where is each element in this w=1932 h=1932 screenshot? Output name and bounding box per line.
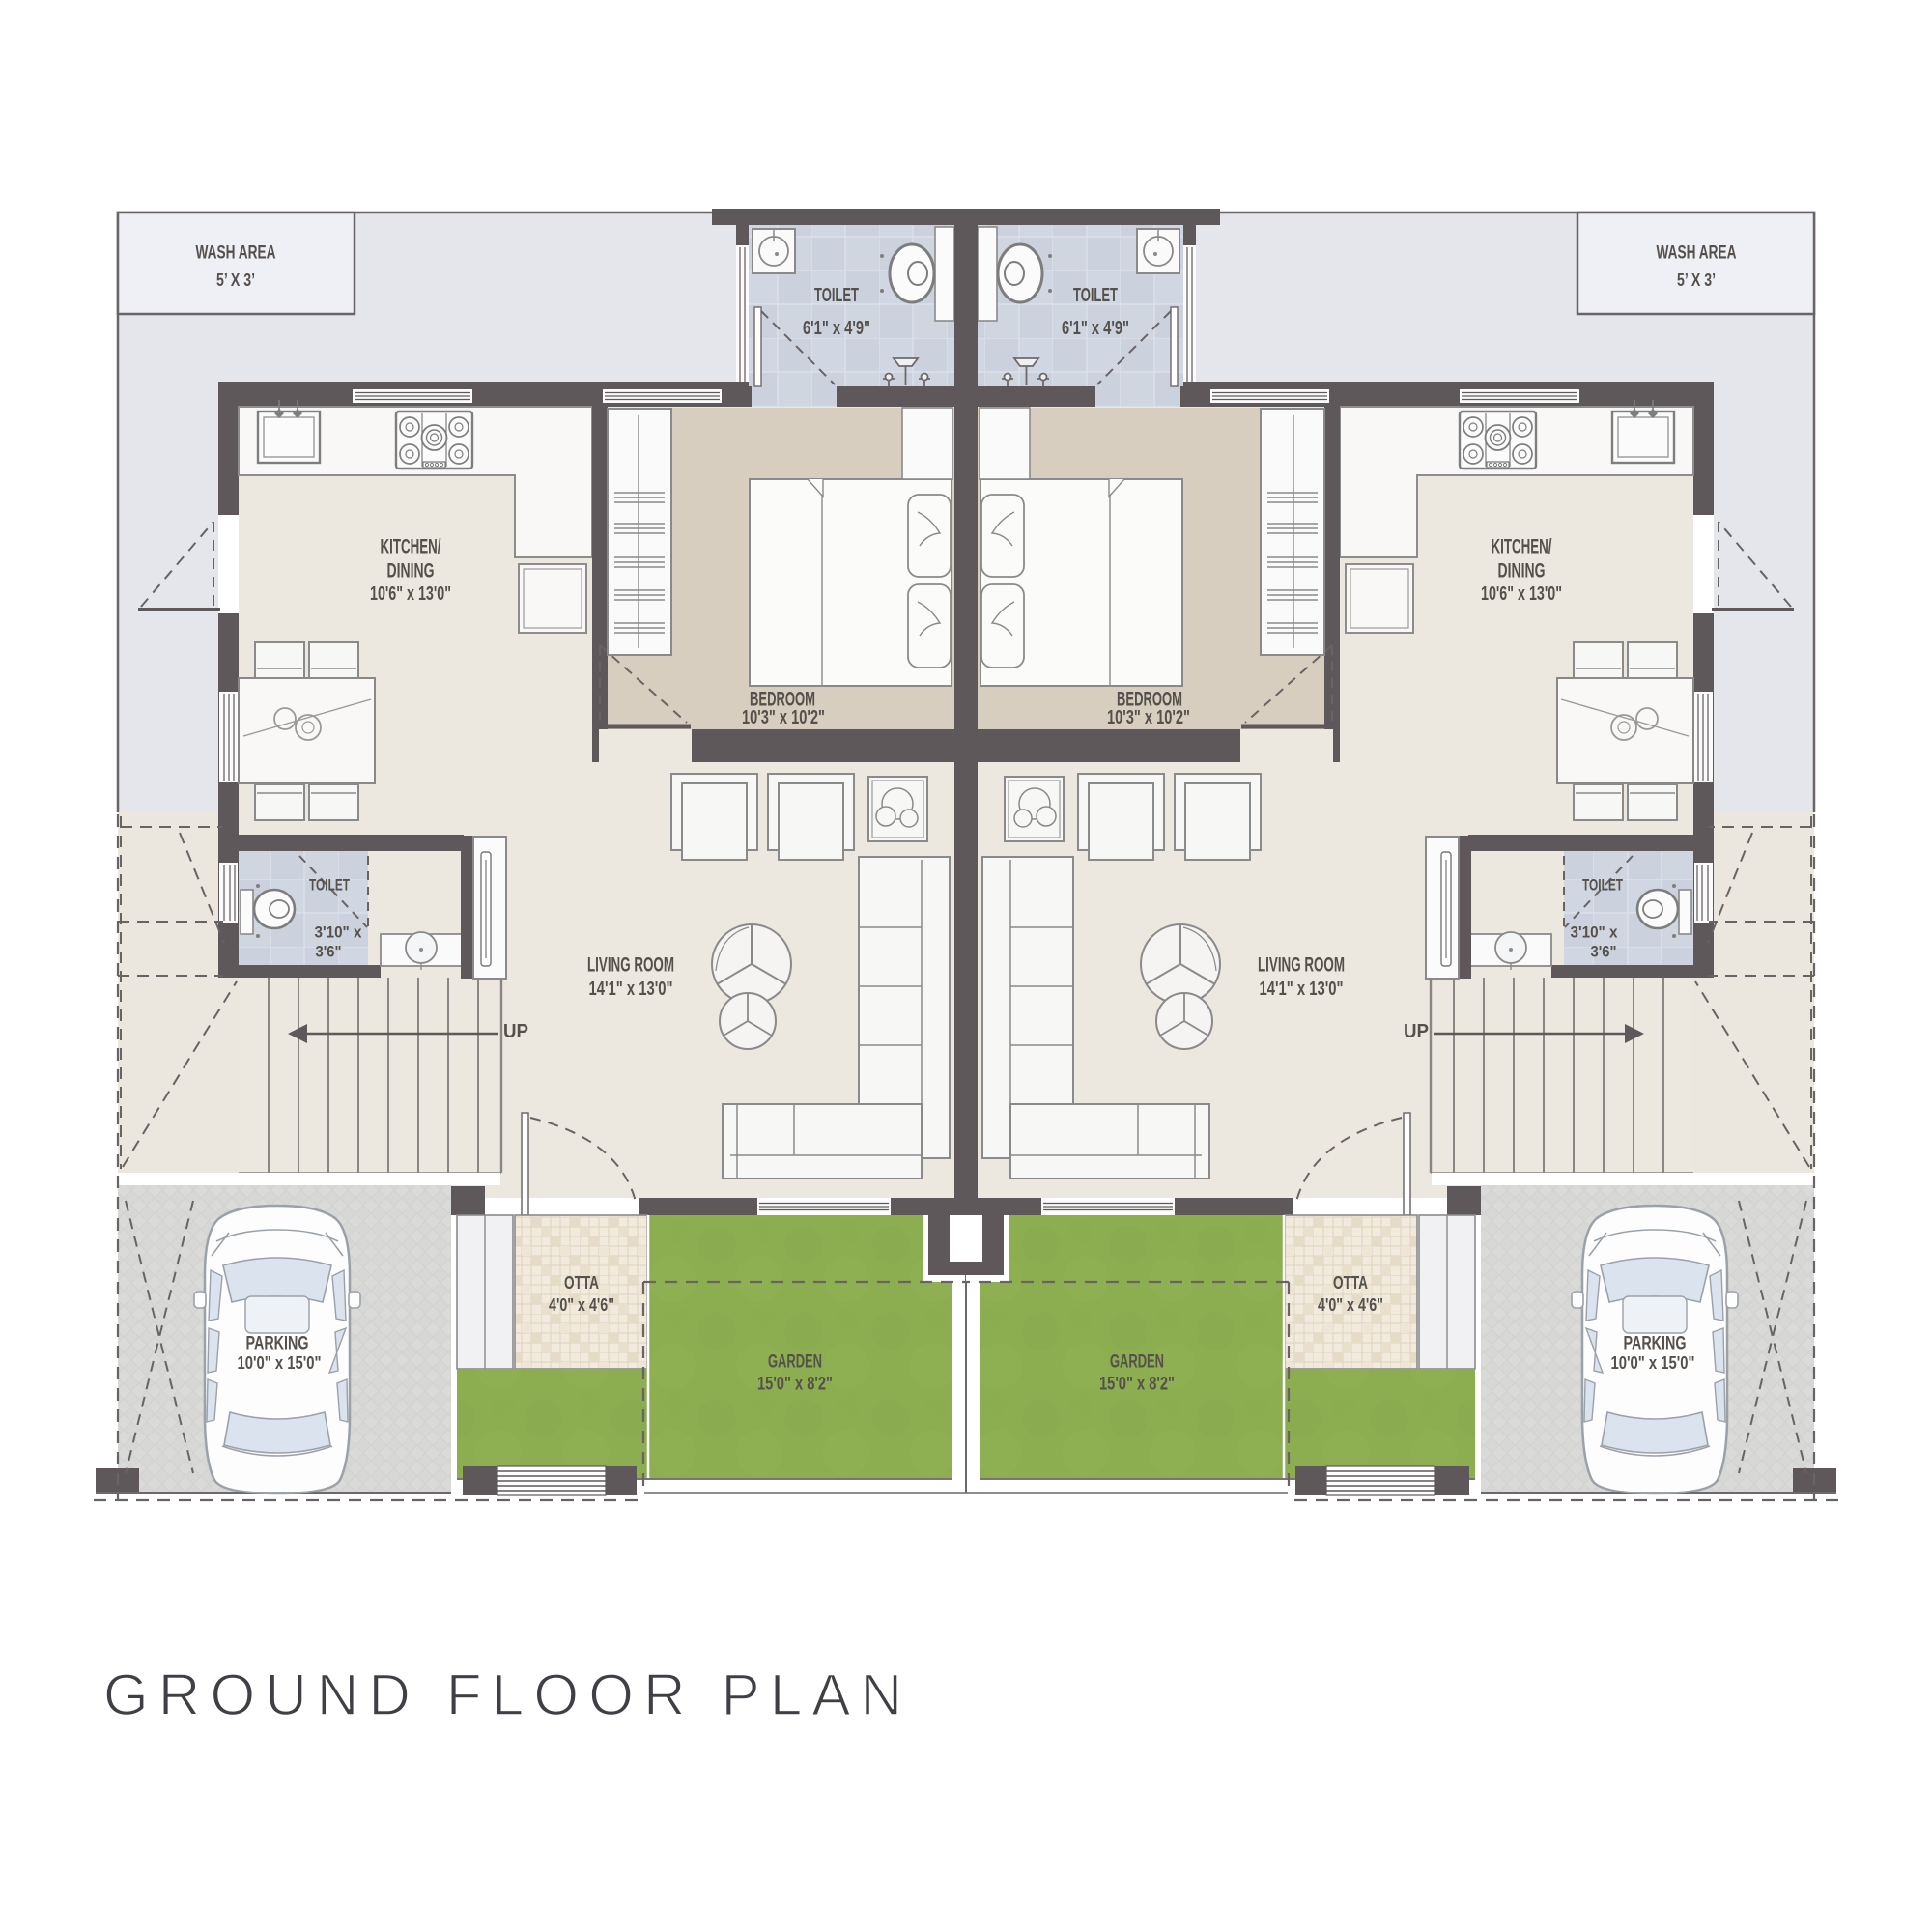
- svg-text:4'0" x 4'6": 4'0" x 4'6": [1318, 1295, 1383, 1315]
- svg-text:OTTA: OTTA: [1333, 1273, 1368, 1293]
- svg-text:KITCHEN/: KITCHEN/: [1492, 536, 1552, 558]
- svg-text:5’ X 3’: 5’ X 3’: [216, 270, 255, 290]
- svg-text:6'1" x 4'9": 6'1" x 4'9": [1062, 318, 1129, 339]
- svg-text:15'0" x 8'2": 15'0" x 8'2": [757, 1375, 833, 1395]
- svg-text:UP: UP: [503, 1021, 528, 1042]
- svg-text:4'0" x 4'6": 4'0" x 4'6": [549, 1295, 614, 1315]
- svg-text:LIVING ROOM: LIVING ROOM: [1258, 954, 1345, 977]
- svg-text:DINING: DINING: [1498, 560, 1546, 582]
- svg-text:UP: UP: [1404, 1021, 1429, 1042]
- svg-text:TOILET: TOILET: [309, 876, 350, 895]
- svg-text:LIVING ROOM: LIVING ROOM: [587, 954, 674, 977]
- svg-text:10'3" x 10'2": 10'3" x 10'2": [742, 707, 825, 728]
- svg-text:WASH AREA: WASH AREA: [1657, 243, 1737, 264]
- svg-text:WASH AREA: WASH AREA: [196, 243, 276, 264]
- svg-text:TOILET: TOILET: [814, 285, 859, 306]
- svg-text:15'0" x 8'2": 15'0" x 8'2": [1099, 1375, 1175, 1395]
- svg-text:DINING: DINING: [387, 560, 435, 582]
- svg-text:10'6" x 13'0": 10'6" x 13'0": [1481, 583, 1562, 605]
- svg-text:TOILET: TOILET: [1582, 876, 1623, 895]
- svg-text:TOILET: TOILET: [1073, 285, 1118, 306]
- svg-text:GARDEN: GARDEN: [768, 1352, 822, 1373]
- svg-text:3'6": 3'6": [1591, 943, 1617, 961]
- svg-text:10'6" x 13'0": 10'6" x 13'0": [370, 583, 451, 605]
- svg-text:14'1" x 13'0": 14'1" x 13'0": [589, 979, 673, 1000]
- svg-text:6'1" x 4'9": 6'1" x 4'9": [803, 318, 870, 339]
- svg-text:10'0" x 15'0": 10'0" x 15'0": [238, 1353, 322, 1373]
- svg-text:KITCHEN/: KITCHEN/: [381, 536, 441, 558]
- svg-text:OTTA: OTTA: [564, 1273, 599, 1293]
- svg-text:3'10" x: 3'10" x: [315, 923, 362, 942]
- svg-text:3'6": 3'6": [316, 943, 342, 961]
- svg-text:PARKING: PARKING: [1624, 1334, 1687, 1354]
- svg-text:GROUND FLOOR PLAN: GROUND FLOOR PLAN: [103, 1662, 904, 1727]
- svg-text:14'1" x 13'0": 14'1" x 13'0": [1260, 979, 1344, 1000]
- svg-text:GARDEN: GARDEN: [1110, 1352, 1164, 1373]
- svg-text:10'3" x 10'2": 10'3" x 10'2": [1107, 707, 1190, 728]
- svg-text:3'10" x: 3'10" x: [1571, 923, 1618, 942]
- svg-text:5’ X 3’: 5’ X 3’: [1677, 270, 1716, 290]
- svg-text:PARKING: PARKING: [246, 1334, 309, 1354]
- svg-text:10'0" x 15'0": 10'0" x 15'0": [1611, 1353, 1695, 1373]
